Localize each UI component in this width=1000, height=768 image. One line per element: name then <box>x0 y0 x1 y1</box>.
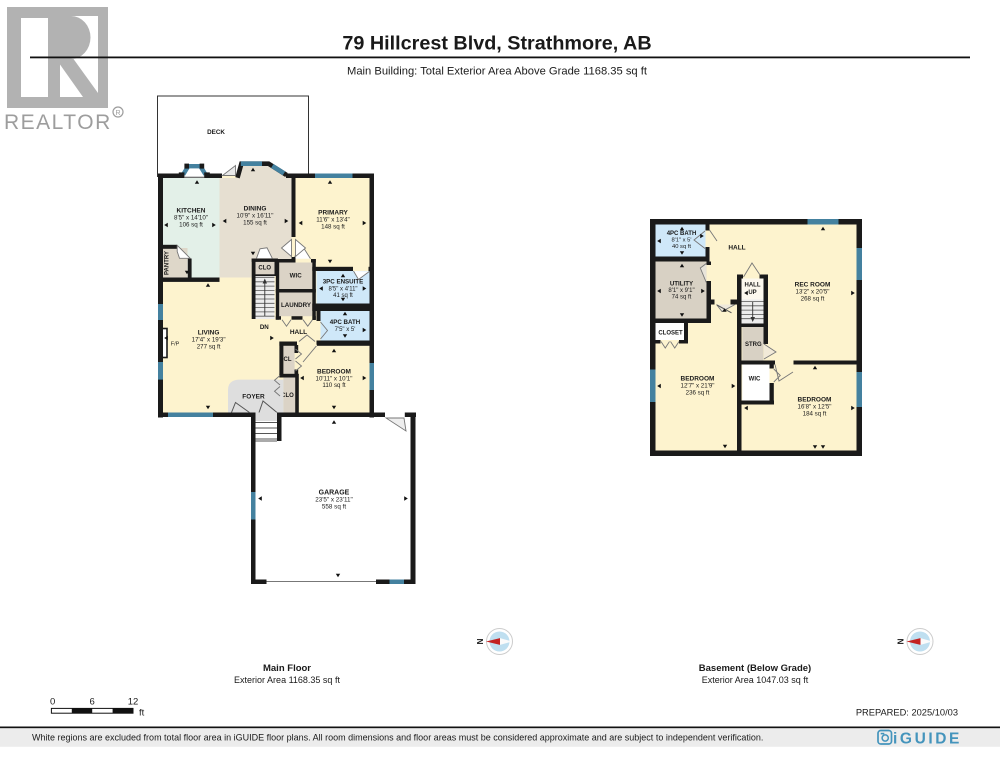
svg-text:4PC BATH: 4PC BATH <box>330 319 361 326</box>
svg-text:ft: ft <box>139 708 145 719</box>
svg-text:CL: CL <box>284 357 292 363</box>
svg-text:PREPARED: 2025/10/03: PREPARED: 2025/10/03 <box>856 708 958 718</box>
svg-text:N: N <box>897 638 906 644</box>
svg-text:4PC BATH: 4PC BATH <box>667 231 697 237</box>
svg-text:17'4" x 19'3": 17'4" x 19'3" <box>192 337 226 344</box>
svg-text:WIC: WIC <box>749 377 761 383</box>
svg-text:6: 6 <box>90 697 95 708</box>
svg-text:iGUIDE: iGUIDE <box>893 731 962 748</box>
svg-text:106 sq ft: 106 sq ft <box>179 222 203 229</box>
svg-text:R: R <box>115 110 120 117</box>
svg-text:BEDROOM: BEDROOM <box>681 376 715 383</box>
svg-text:277 sq ft: 277 sq ft <box>197 344 221 351</box>
svg-text:UTILITY: UTILITY <box>670 281 694 288</box>
svg-text:12'7" x 21'9": 12'7" x 21'9" <box>681 383 715 390</box>
svg-text:Basement (Below Grade): Basement (Below Grade) <box>699 663 811 674</box>
svg-text:HALL: HALL <box>728 245 745 252</box>
svg-text:Main Building: Total Exterior: Main Building: Total Exterior Area Above… <box>347 66 648 78</box>
svg-text:LIVING: LIVING <box>198 330 220 337</box>
svg-text:DN: DN <box>260 324 269 331</box>
svg-text:HALL: HALL <box>745 283 761 289</box>
svg-text:0: 0 <box>50 697 55 708</box>
svg-text:DECK: DECK <box>207 129 225 136</box>
svg-text:184 sq ft: 184 sq ft <box>803 410 827 417</box>
svg-text:268 sq ft: 268 sq ft <box>801 296 825 303</box>
svg-text:8'1" x 5': 8'1" x 5' <box>671 238 691 244</box>
svg-text:155 sq ft: 155 sq ft <box>243 220 267 227</box>
svg-text:PANTRY: PANTRY <box>165 251 171 275</box>
svg-text:11'6" x 13'4": 11'6" x 13'4" <box>316 217 349 224</box>
svg-text:Exterior Area 1047.03 sq ft: Exterior Area 1047.03 sq ft <box>702 675 809 685</box>
svg-text:UP: UP <box>748 290 756 296</box>
svg-text:LAUNDRY: LAUNDRY <box>281 302 312 309</box>
svg-text:F/P: F/P <box>171 342 180 348</box>
svg-text:STRG: STRG <box>745 342 762 348</box>
svg-text:GARAGE: GARAGE <box>319 490 350 497</box>
svg-text:10'9" x 16'11": 10'9" x 16'11" <box>237 213 274 220</box>
svg-text:8'5" x 4'11": 8'5" x 4'11" <box>328 286 357 292</box>
svg-text:3PC ENSUITE: 3PC ENSUITE <box>323 279 364 286</box>
svg-text:Main Floor: Main Floor <box>263 663 311 674</box>
svg-text:PRIMARY: PRIMARY <box>318 210 348 217</box>
svg-text:236 sq ft: 236 sq ft <box>686 390 710 397</box>
svg-text:BEDROOM: BEDROOM <box>798 397 832 404</box>
svg-text:558 sq ft: 558 sq ft <box>322 503 346 510</box>
svg-text:N: N <box>476 638 485 644</box>
svg-text:Exterior Area 1168.35 sq ft: Exterior Area 1168.35 sq ft <box>234 675 340 685</box>
svg-text:7'5" x 5': 7'5" x 5' <box>335 327 356 333</box>
svg-text:40 sq ft: 40 sq ft <box>672 244 691 250</box>
svg-text:REALTOR: REALTOR <box>4 111 112 134</box>
svg-text:CLOSET: CLOSET <box>658 331 683 337</box>
svg-text:WIC: WIC <box>290 273 303 280</box>
svg-text:74 sq ft: 74 sq ft <box>672 295 692 301</box>
svg-text:REC ROOM: REC ROOM <box>795 282 831 289</box>
svg-text:HALL: HALL <box>290 329 307 336</box>
svg-text:79 Hillcrest Blvd, Strathmore,: 79 Hillcrest Blvd, Strathmore, AB <box>342 33 651 55</box>
svg-text:12: 12 <box>128 697 139 708</box>
svg-text:DINING: DINING <box>244 206 267 213</box>
svg-text:KITCHEN: KITCHEN <box>177 208 206 215</box>
svg-text:110 sq ft: 110 sq ft <box>322 382 346 389</box>
svg-text:FOYER: FOYER <box>242 394 265 401</box>
svg-text:8'1" x 9'1": 8'1" x 9'1" <box>668 288 694 294</box>
svg-text:8'5" x 14'10": 8'5" x 14'10" <box>174 215 208 222</box>
svg-text:CLO: CLO <box>258 266 271 272</box>
svg-text:White regions are excluded fro: White regions are excluded from total fl… <box>32 733 763 743</box>
svg-text:13'2" x 20'5": 13'2" x 20'5" <box>796 289 830 296</box>
svg-text:148 sq ft: 148 sq ft <box>321 224 345 231</box>
